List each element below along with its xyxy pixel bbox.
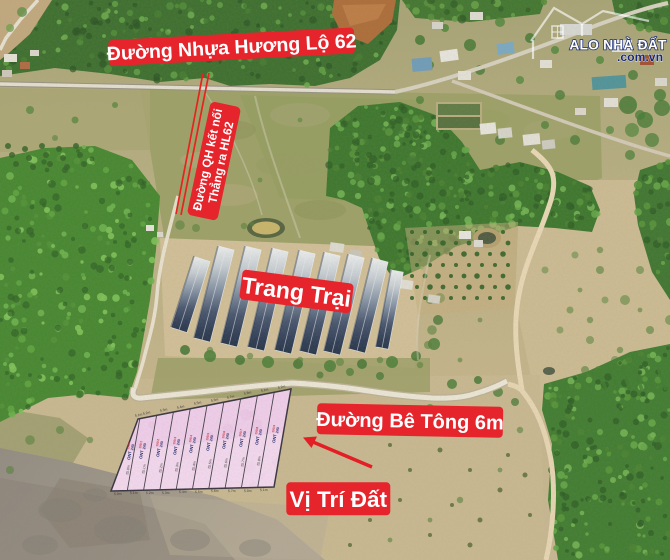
svg-text:.com.vn: .com.vn	[617, 50, 663, 64]
svg-text:Đường Bê Tông 6m: Đường Bê Tông 6m	[316, 409, 504, 435]
svg-text:Vị Trí Đất: Vị Trí Đất	[290, 487, 388, 512]
